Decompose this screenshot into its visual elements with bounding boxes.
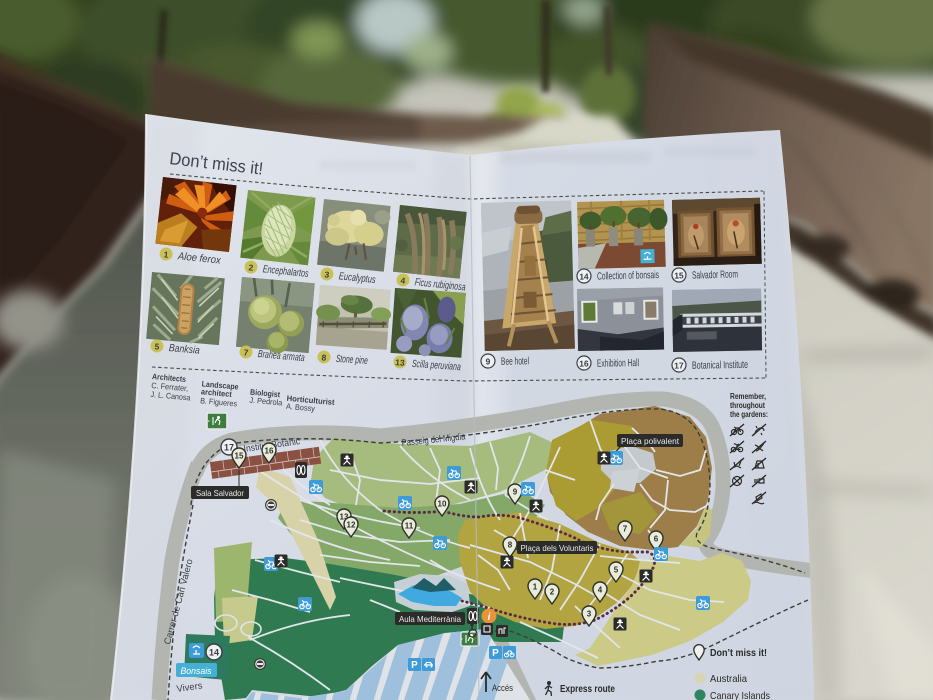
- svg-text:12: 12: [347, 521, 356, 530]
- svg-text:9: 9: [486, 356, 491, 366]
- svg-text:8: 8: [508, 541, 513, 550]
- svg-text:Aula Mediterrània: Aula Mediterrània: [399, 614, 461, 624]
- svg-text:14: 14: [209, 648, 219, 658]
- svg-text:Plaça polivalent: Plaça polivalent: [621, 436, 680, 446]
- svg-text:17: 17: [674, 360, 684, 370]
- svg-text:11: 11: [405, 522, 414, 531]
- svg-text:Bee hotel: Bee hotel: [501, 355, 529, 367]
- svg-text:8: 8: [321, 352, 327, 362]
- svg-text:16: 16: [265, 447, 274, 456]
- svg-text:4: 4: [598, 586, 603, 595]
- svg-text:14: 14: [579, 271, 589, 281]
- svg-text:5: 5: [614, 566, 619, 575]
- svg-text:9: 9: [513, 488, 518, 497]
- svg-text:Stone pine: Stone pine: [335, 353, 368, 367]
- svg-text:P: P: [492, 648, 499, 659]
- svg-text:13: 13: [395, 357, 405, 368]
- svg-text:Australia: Australia: [710, 673, 747, 685]
- svg-text:16: 16: [579, 358, 589, 368]
- svg-text:15: 15: [674, 270, 684, 280]
- svg-text:the gardens:: the gardens:: [730, 410, 768, 419]
- svg-text:15: 15: [235, 452, 244, 461]
- svg-text:i: i: [488, 612, 491, 623]
- svg-text:Botanical Institute: Botanical Institute: [692, 359, 748, 372]
- svg-text:Accés: Accés: [492, 683, 513, 694]
- svg-text:P: P: [411, 660, 418, 671]
- svg-text:Exhibition Hall: Exhibition Hall: [597, 357, 639, 370]
- svg-text:Express route: Express route: [560, 683, 615, 695]
- svg-text:Sala Salvador: Sala Salvador: [196, 488, 244, 498]
- svg-text:Plaça dels Voluntaris: Plaça dels Voluntaris: [521, 543, 594, 553]
- svg-text:7: 7: [623, 525, 628, 534]
- svg-text:Bonsais: Bonsais: [181, 666, 212, 677]
- svg-text:1: 1: [533, 583, 538, 592]
- svg-text:6: 6: [654, 535, 659, 544]
- svg-text:10: 10: [438, 500, 447, 509]
- svg-text:Collection of bonsais: Collection of bonsais: [597, 269, 659, 283]
- svg-text:throughout: throughout: [730, 401, 765, 410]
- svg-text:3: 3: [587, 610, 592, 619]
- svg-text:Remember,: Remember,: [730, 392, 766, 401]
- svg-text:Salvador Room: Salvador Room: [692, 268, 738, 281]
- svg-text:Canary Islands: Canary Islands: [710, 690, 770, 700]
- svg-text:Don’t miss it!: Don’t miss it!: [710, 647, 767, 659]
- svg-text:2: 2: [550, 588, 555, 597]
